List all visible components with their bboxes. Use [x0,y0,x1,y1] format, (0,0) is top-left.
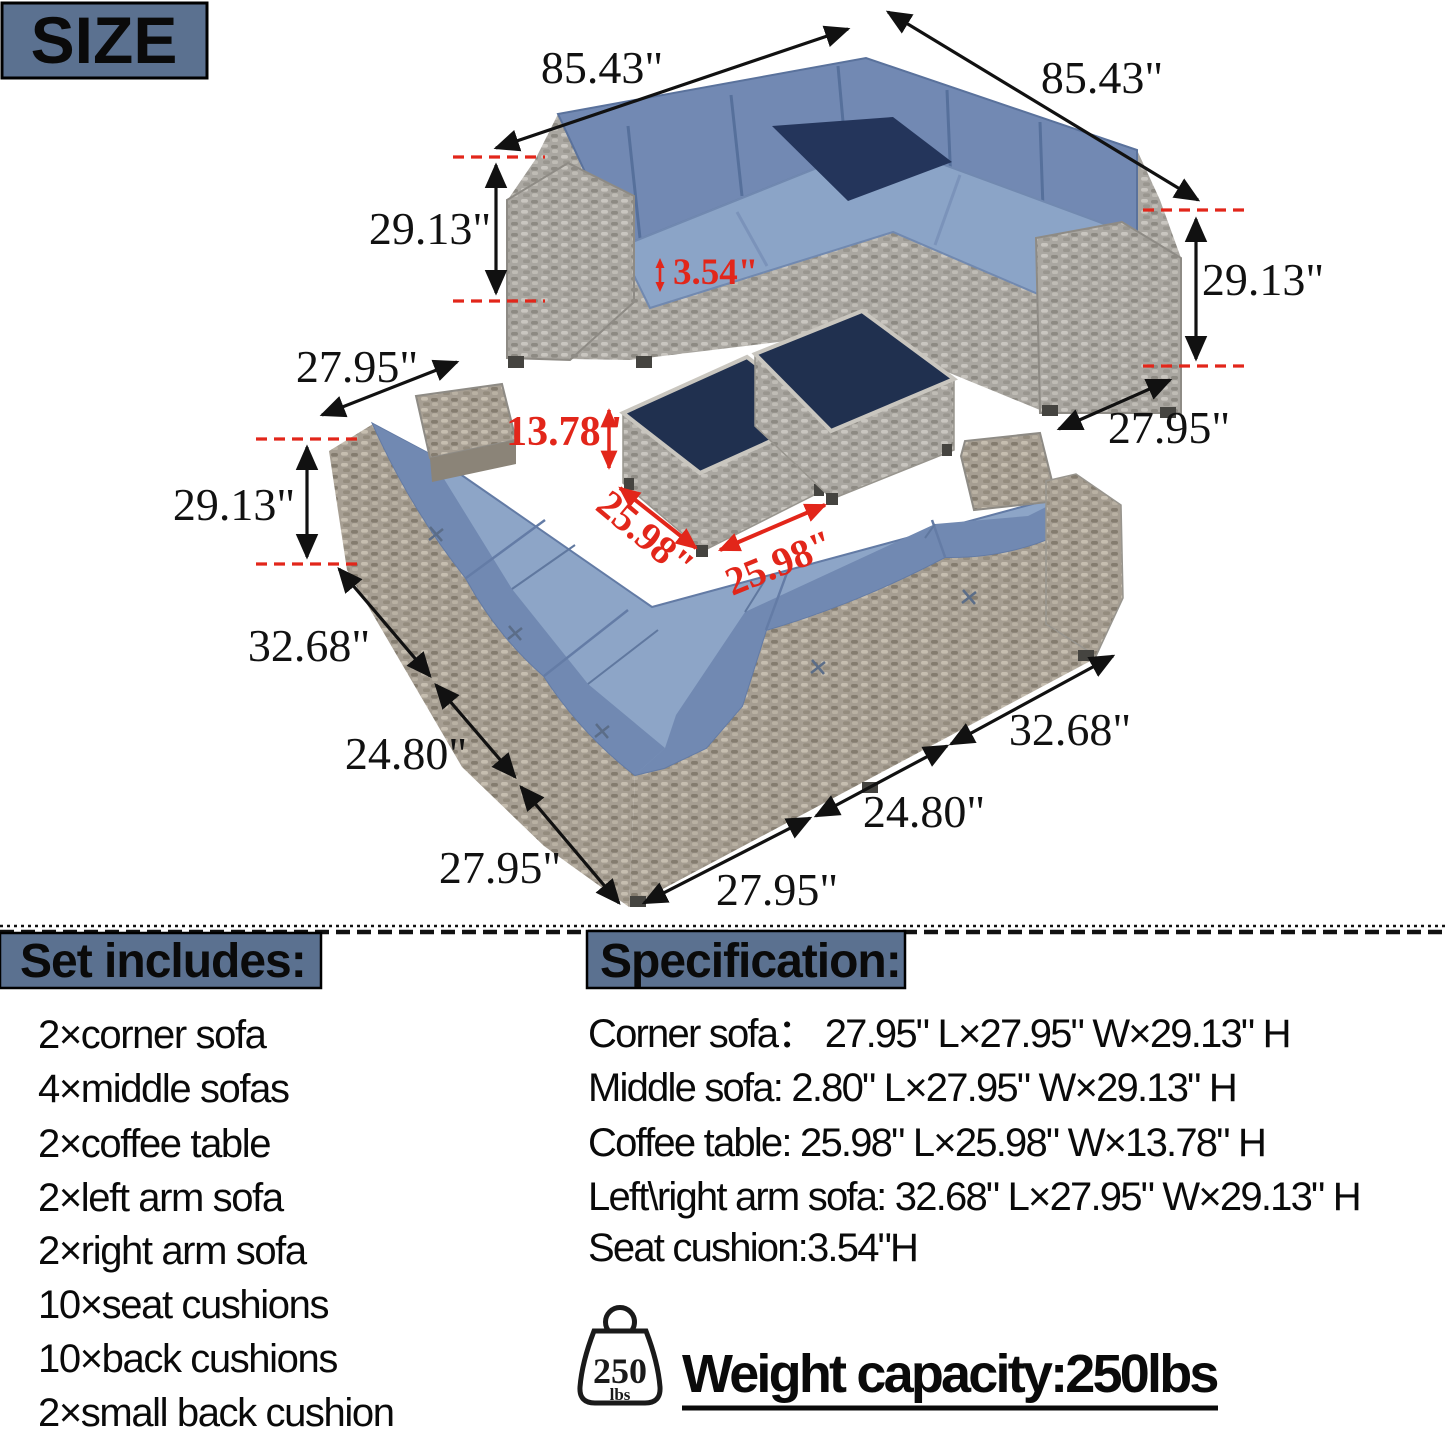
svg-text:29.13": 29.13" [1202,254,1324,305]
svg-text:27.95": 27.95" [439,842,561,893]
svg-text:85.43": 85.43" [1041,52,1163,103]
svg-text:27.95": 27.95" [296,341,418,392]
svg-text:2×corner sofa: 2×corner sofa [38,1013,268,1057]
svg-text:27.95": 27.95" [716,864,838,915]
svg-text:lbs: lbs [610,1385,631,1404]
svg-text:Middle sofa: 2.80" L×27.95" W×: Middle sofa: 2.80" L×27.95" W×29.13" H [588,1066,1236,1110]
svg-text:Weight capacity:250lbs: Weight capacity:250lbs [682,1344,1217,1404]
svg-text:27.95": 27.95" [1108,402,1230,453]
svg-text:2×left arm sofa: 2×left arm sofa [38,1176,285,1220]
svg-text:Seat cushion:3.54"H: Seat cushion:3.54"H [588,1226,917,1270]
svg-text:85.43": 85.43" [541,42,663,93]
svg-text:32.68": 32.68" [1009,704,1131,755]
svg-text:2×small back cushion: 2×small back cushion [38,1391,394,1435]
svg-text:SIZE: SIZE [31,3,178,77]
svg-text:10×seat cushions: 10×seat cushions [38,1283,328,1327]
svg-text:Corner sofa： 27.95" L×27.95": Corner sofa： 27.95" L×27.95" W×29.13" H [588,1012,1290,1056]
svg-text:Specification:: Specification: [600,935,901,988]
svg-text:4×middle sofas: 4×middle sofas [38,1067,289,1111]
svg-text:24.80": 24.80" [863,786,985,837]
svg-text:29.13": 29.13" [173,479,295,530]
svg-text:13.78": 13.78" [506,409,624,455]
svg-text:3.54": 3.54" [673,252,758,293]
svg-text:10×back cushions: 10×back cushions [38,1337,337,1381]
svg-text:2×coffee table: 2×coffee table [38,1122,270,1166]
svg-text:32.68": 32.68" [248,620,370,671]
svg-text:Set includes:: Set includes: [20,935,306,988]
svg-text:29.13": 29.13" [369,203,491,254]
svg-text:Left\right arm sofa: 32.68" L×: Left\right arm sofa: 32.68" L×27.95" W×2… [588,1175,1360,1219]
svg-text:24.80": 24.80" [345,728,467,779]
svg-text:Coffee table: 25.98" L×25.98": Coffee table: 25.98" L×25.98" W×13.78" H [588,1121,1265,1165]
svg-text:2×right arm sofa: 2×right arm sofa [38,1229,308,1273]
